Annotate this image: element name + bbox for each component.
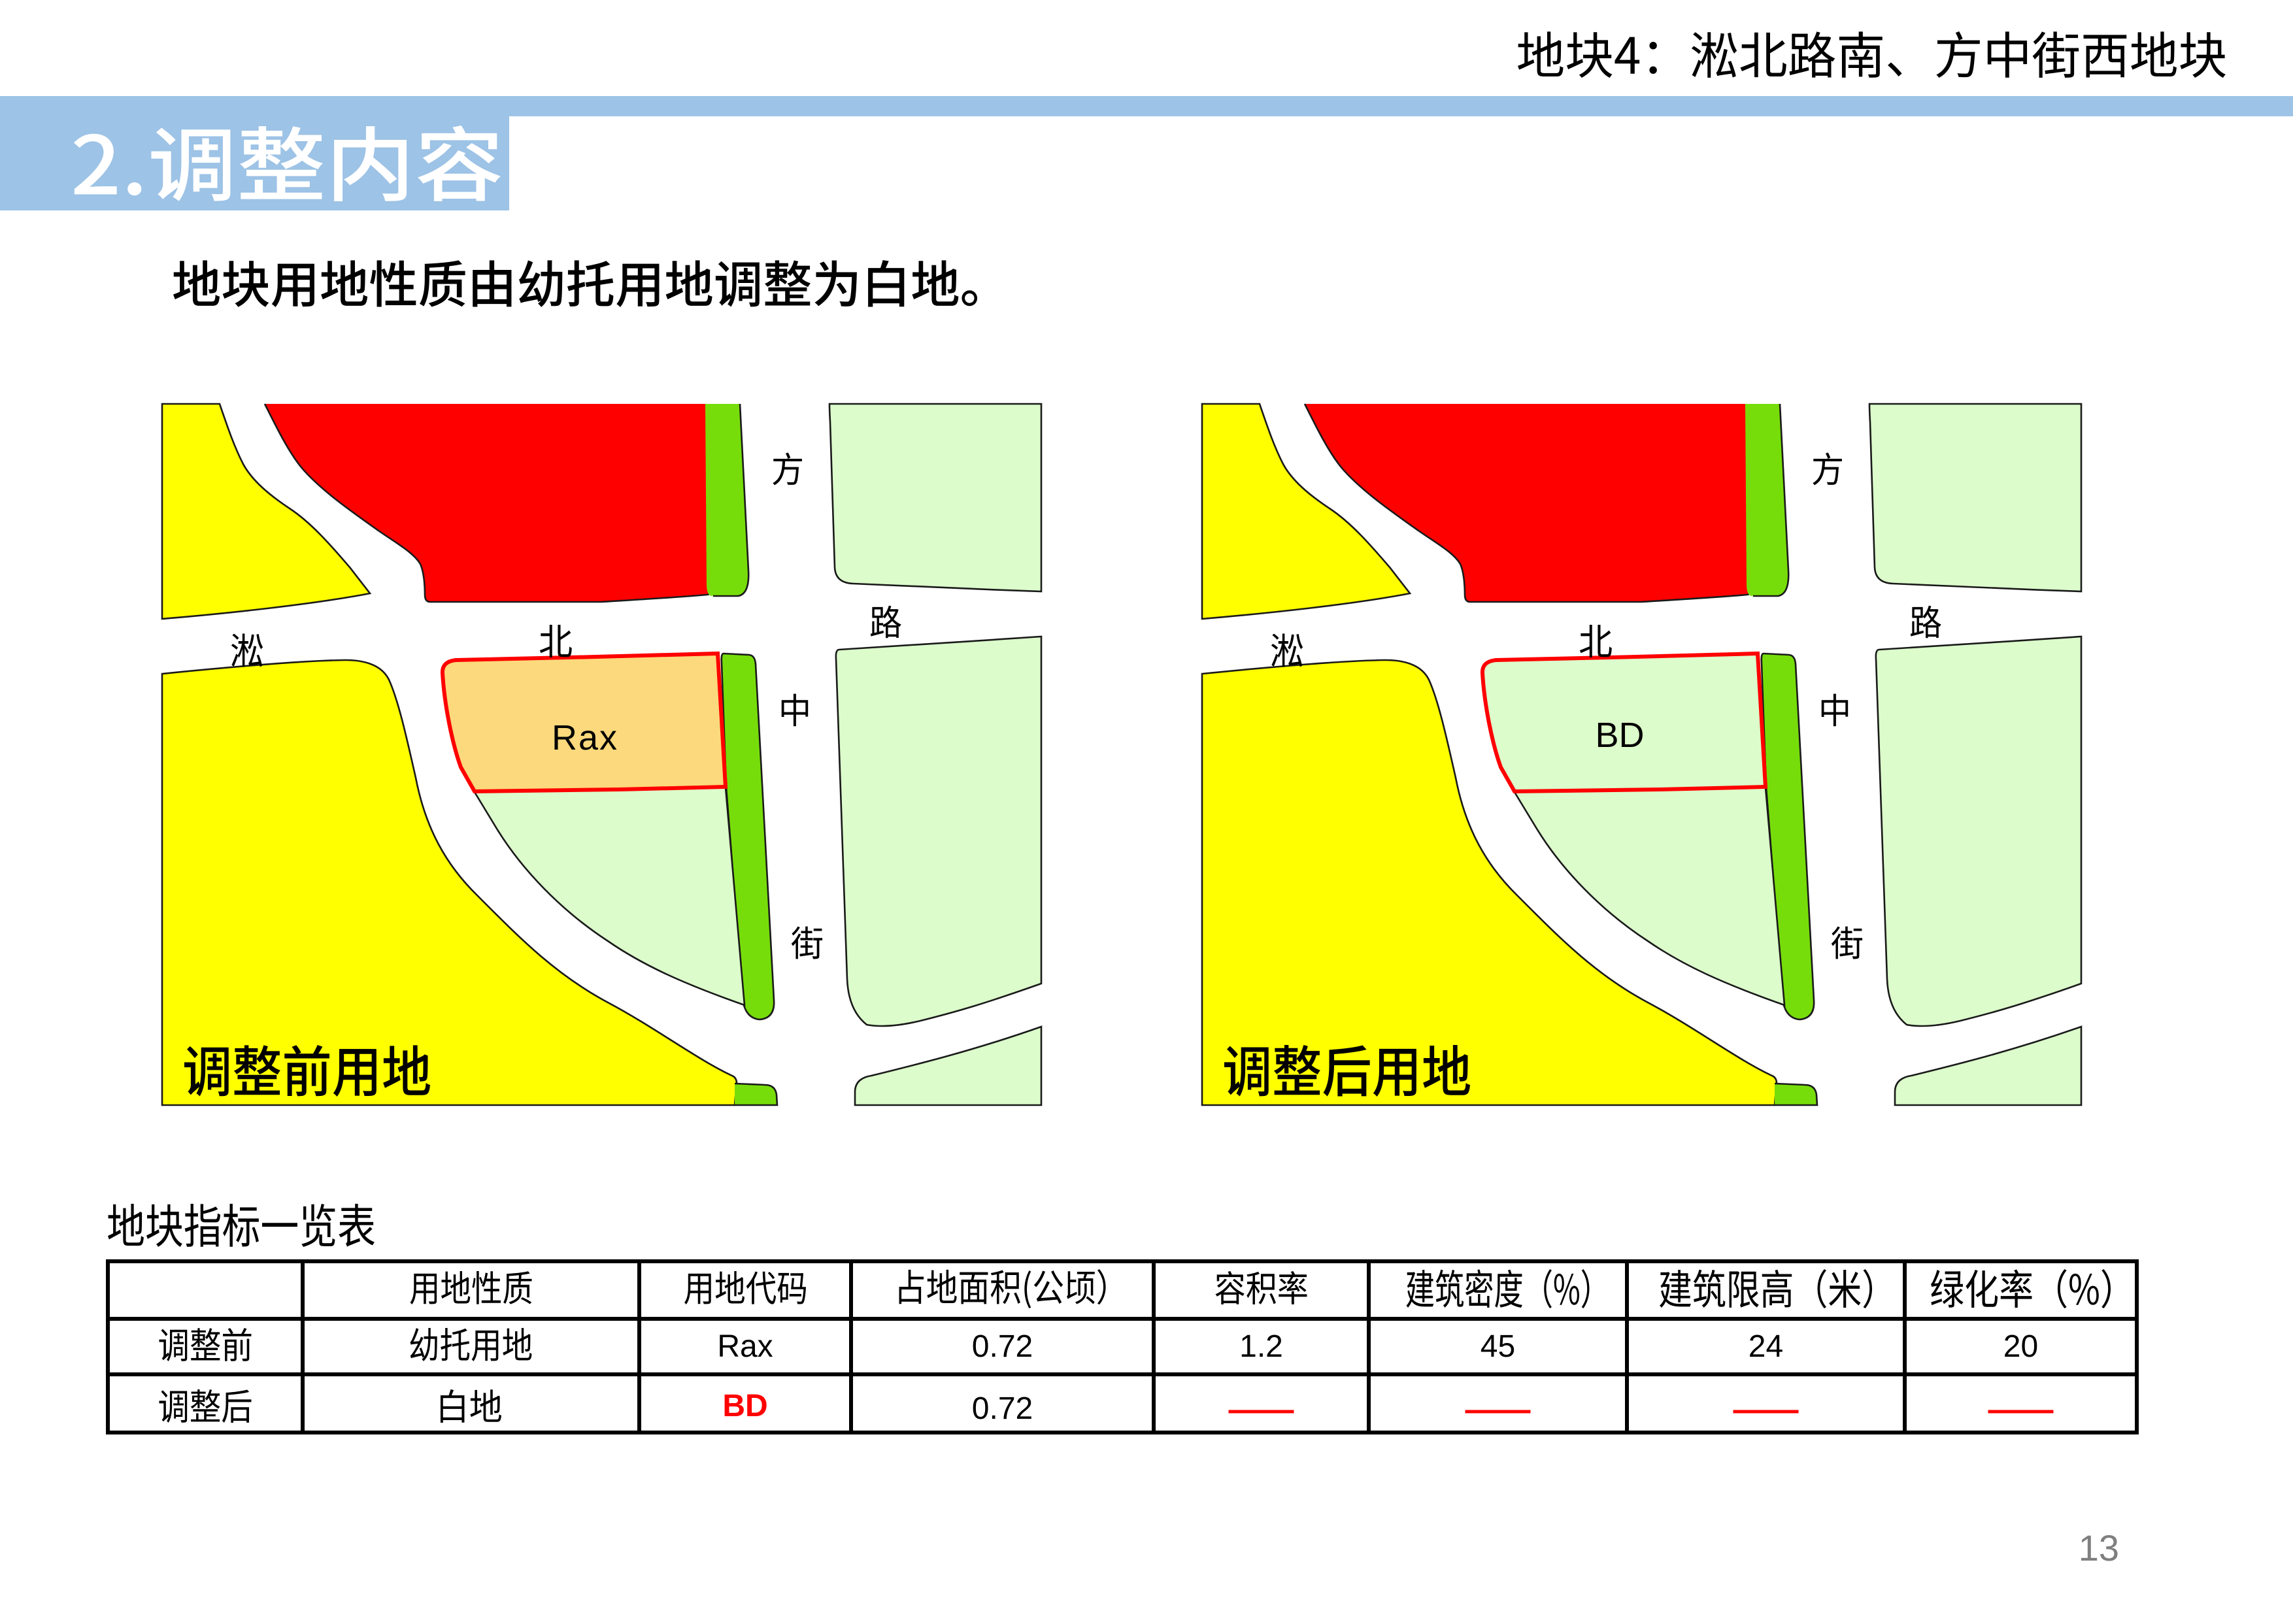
svg-text:20: 20	[2003, 1329, 2038, 1364]
svg-text:13: 13	[2079, 1527, 2119, 1568]
svg-text:BD: BD	[1595, 716, 1644, 755]
svg-text:Rax: Rax	[552, 718, 618, 757]
svg-text:Rax: Rax	[717, 1329, 773, 1364]
svg-text:24: 24	[1749, 1329, 1783, 1364]
svg-text:BD: BD	[722, 1389, 767, 1423]
svg-text:0.72: 0.72	[972, 1329, 1033, 1364]
svg-text:45: 45	[1481, 1329, 1515, 1364]
svg-text:0.72: 0.72	[972, 1391, 1033, 1426]
svg-text:1.2: 1.2	[1239, 1329, 1283, 1364]
